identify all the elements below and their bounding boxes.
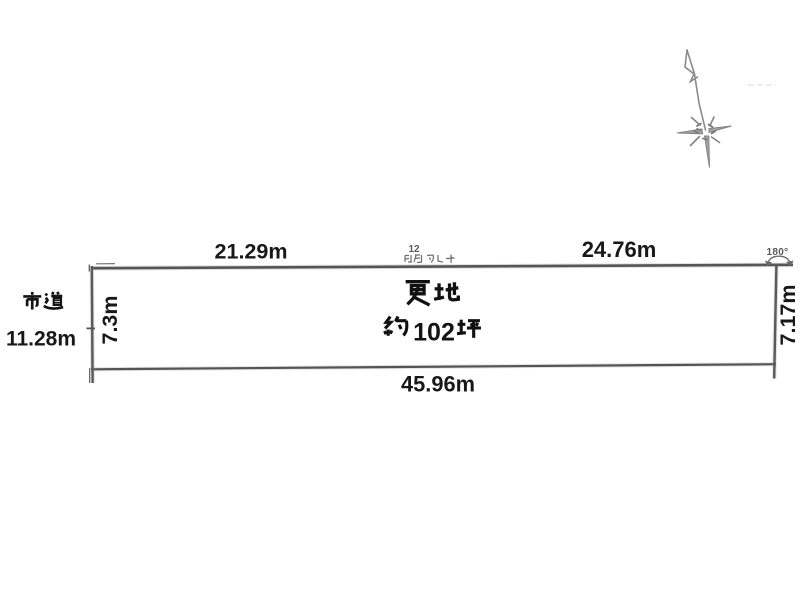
svg-text:7.3m: 7.3m bbox=[98, 295, 122, 344]
svg-text:21.29m: 21.29m bbox=[215, 240, 288, 264]
svg-text:11.28m: 11.28m bbox=[6, 328, 76, 351]
svg-text:24.76m: 24.76m bbox=[582, 237, 657, 262]
svg-text:180°: 180° bbox=[767, 247, 789, 258]
svg-text:102: 102 bbox=[413, 319, 455, 347]
svg-text:12: 12 bbox=[408, 244, 420, 255]
svg-text:7.17m: 7.17m bbox=[776, 285, 800, 346]
svg-text:45.96m: 45.96m bbox=[401, 372, 475, 397]
